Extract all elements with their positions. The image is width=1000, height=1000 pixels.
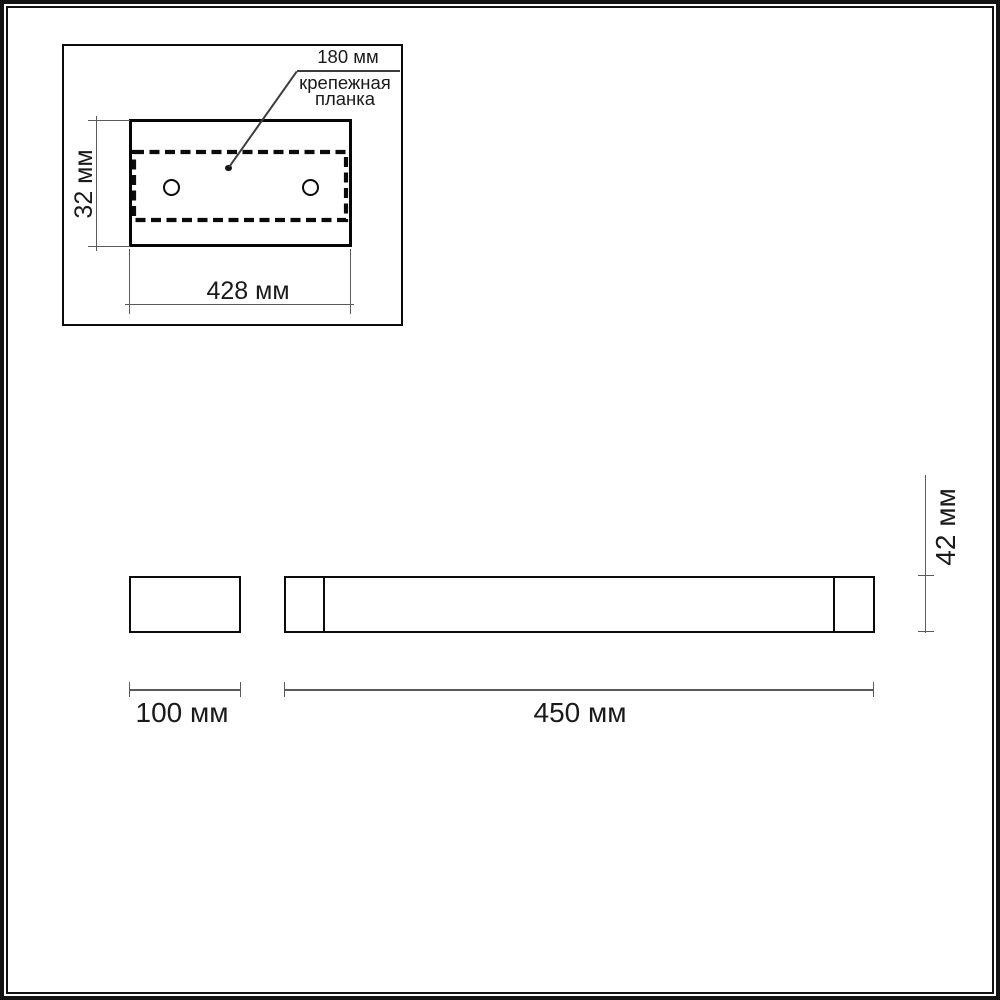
label-bracket-caption: крепежная планка [288,75,402,107]
dim-bracket-depth-line [129,689,241,690]
label-body-height: 42 мм [930,472,958,582]
body-end-cap-line-right [833,578,835,631]
dim-body-height-tick-bottom [918,631,934,632]
screw-hole-left [163,179,180,196]
technical-drawing: 180 мм крепежная планка 32 мм 428 мм 100… [0,0,1000,1000]
dim-body-length-line [284,689,874,690]
dim-plate-height-extension-top [88,120,130,121]
label-bracket-depth: 100 мм [112,697,252,729]
label-plate-width: 428 мм [137,277,359,306]
dim-bracket-depth-tick-left [129,682,130,697]
lamp-side-view-bracket [129,576,241,633]
dim-plate-height-extension-bottom [88,246,130,247]
dim-bracket-depth-tick-right [240,682,241,697]
dim-body-length-tick-left [284,682,285,697]
label-body-length: 450 мм [480,697,680,729]
label-bracket-length: 180 мм [297,49,399,65]
label-bracket-caption-line2: планка [288,91,402,107]
body-end-cap-line-left [323,578,325,631]
screw-hole-right [302,179,319,196]
lamp-side-view-body [284,576,875,633]
dim-body-length-tick-right [873,682,874,697]
label-plate-height: 32 мм [70,142,96,226]
dim-body-height-line [925,475,926,633]
